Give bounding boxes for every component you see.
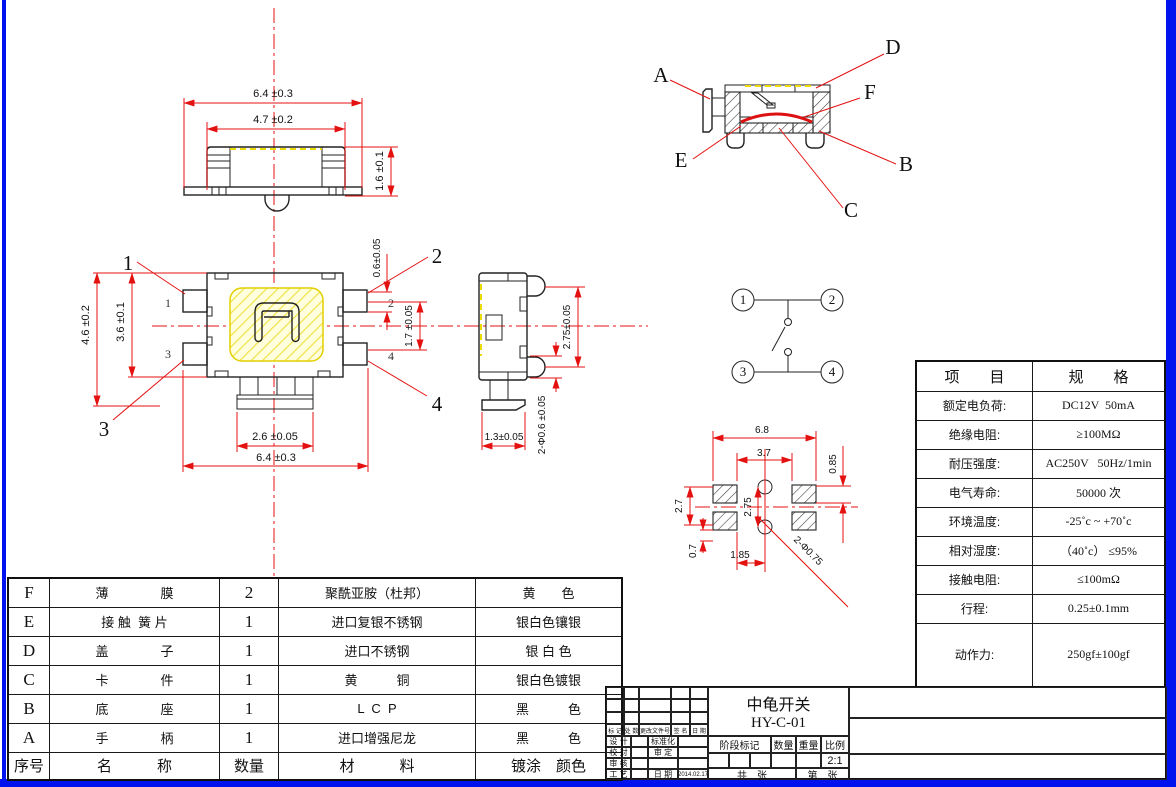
title-cell: 中龟开关 HY-C-01 [708, 687, 849, 736]
label-e: E [675, 148, 688, 172]
drawing-sheet: { "front_view": { "dim_width_outer": "6.… [0, 0, 1176, 787]
bom-name: 卡 件 [50, 665, 220, 694]
weight-label: 重量 [796, 736, 821, 753]
sig-label: 校 对 [606, 747, 631, 758]
bom-footer-qty: 数量 [220, 752, 279, 780]
spec-item: 动作力: [916, 623, 1033, 687]
bom-finish: 黄 色 [476, 578, 623, 607]
label-b: B [899, 152, 913, 176]
contact-spring [741, 114, 812, 122]
bom-qty: 1 [220, 723, 279, 752]
scale-label: 比例 [821, 736, 849, 753]
pin-label-4: 4 [388, 349, 394, 363]
terminal-3: 3 [740, 364, 747, 379]
dim-top-height-outer: 4.6 ±0.2 [80, 305, 92, 345]
dim-bump-dia: 2-Φ0.6 ±0.05 [537, 395, 548, 454]
pad [713, 512, 737, 530]
rev-header: 更改文件号 [639, 724, 671, 736]
pin-label-2: 2 [388, 296, 394, 310]
bom-id: D [8, 636, 50, 665]
spec-table: 项 目 规 格 额定电负荷:DC12V 50mA 绝缘电阻:≥100MΩ 耐压强… [915, 360, 1166, 688]
terminal-1: 1 [740, 292, 747, 307]
sig-label: 审 核 [606, 758, 631, 769]
callout-4: 4 [432, 392, 443, 416]
qty-label: 数量 [771, 736, 796, 753]
bom-name: 底 座 [50, 694, 220, 723]
dim-fp-offset: 1.85 [730, 550, 750, 561]
label-d: D [885, 35, 900, 59]
bom-material: 进口复银不锈钢 [279, 607, 476, 636]
dim-pin-span: 1.7 ±0.05 [404, 305, 415, 347]
bom-id: B [8, 694, 50, 723]
bom-name: 手 柄 [50, 723, 220, 752]
bom-footer-name: 名 称 [50, 752, 220, 780]
bom-name: 接 触 簧 片 [50, 607, 220, 636]
bom-id: F [8, 578, 50, 607]
sig-label [648, 758, 678, 769]
bom-row: B 底 座 1 L C P 黑 色 [8, 694, 622, 723]
dim-front-height: 1.6 ±0.1 [374, 151, 386, 191]
bom-footer-material: 材 料 [279, 752, 476, 780]
bom-material: 进口不锈钢 [279, 636, 476, 665]
bom-material: L C P [279, 694, 476, 723]
spec-item: 额定电负荷: [916, 391, 1033, 420]
pad [792, 485, 816, 503]
bom-material: 聚酰亚胺（杜邦） [279, 578, 476, 607]
film-pad [230, 288, 323, 361]
callout-3: 3 [99, 417, 110, 441]
dim-pin-width: 0.6±0.05 [372, 238, 383, 277]
dim-bump-span: 2.75±0.05 [562, 304, 573, 349]
sig-date: 2014.02.17 [678, 769, 708, 780]
dim-foot-width: 1.3±0.05 [485, 432, 524, 443]
spec-item: 相对湿度: [916, 536, 1033, 565]
bom-name: 薄 膜 [50, 578, 220, 607]
rev-header: 标 记 [606, 724, 624, 736]
spec-item: 绝缘电阻: [916, 420, 1033, 449]
spec-item: 环境温度: [916, 507, 1033, 536]
bom-row: A 手 柄 1 进口增强尼龙 黑 色 [8, 723, 622, 752]
sig-label: 日 期 [648, 769, 678, 780]
title-block: 标 记 处 数 更改文件号 签 名 日 期 设 计 标准化 校 对 审 定 审 … [605, 686, 1166, 779]
dim-fp-hole-pitch: 2.75 [743, 497, 754, 517]
dim-fp-pad-height: 0.85 [828, 454, 839, 474]
rev-header: 日 期 [690, 724, 708, 736]
part-number: HY-C-01 [751, 715, 806, 732]
callout-1: 1 [123, 251, 134, 275]
spec-value: DC12V 50mA [1033, 391, 1166, 420]
bom-qty: 1 [220, 636, 279, 665]
sheet-total: 共 张 [708, 768, 796, 780]
bom-table: F 薄 膜 2 聚酰亚胺（杜邦） 黄 色 E 接 触 簧 片 1 进口复银不锈钢… [7, 577, 623, 781]
spec-value: AC250V 50Hz/1min [1033, 449, 1166, 478]
dim-fp-pad-span: 2.7 [674, 499, 685, 513]
bom-row: E 接 触 簧 片 1 进口复银不锈钢 银白色镶银 [8, 607, 622, 636]
dim-front-width-outer: 6.4 ±0.3 [253, 88, 293, 100]
bom-finish: 银白色镀银 [476, 665, 623, 694]
circuit-diagram: 1 2 3 4 [732, 289, 843, 383]
bom-id: E [8, 607, 50, 636]
front-view: 6.4 ±0.3 4.7 ±0.2 1.6 ±0.1 [184, 88, 398, 211]
bom-qty: 2 [220, 578, 279, 607]
spec-value: ≤100mΩ [1033, 565, 1166, 594]
pin-label-3: 3 [165, 347, 171, 361]
actuator [703, 89, 712, 132]
spec-value: （40˚c） ≤95% [1033, 536, 1166, 565]
bom-row: D 盖 子 1 进口不锈钢 银 白 色 [8, 636, 622, 665]
rev-header: 处 数 [624, 724, 639, 736]
bom-footer-finish: 镀涂 颜色 [476, 752, 623, 780]
pin-label-1: 1 [165, 296, 171, 310]
bom-material: 黄 铜 [279, 665, 476, 694]
sig-label: 设 计 [606, 736, 631, 747]
spec-value: 250gf±100gf [1033, 623, 1166, 687]
bom-id: A [8, 723, 50, 752]
sig-label: 审 定 [648, 747, 678, 758]
bom-finish: 银 白 色 [476, 636, 623, 665]
rev-header: 签 名 [671, 724, 690, 736]
pin-2 [343, 290, 367, 312]
spec-header-spec: 规 格 [1033, 361, 1166, 391]
dim-fp-width-inner: 3.7 [757, 448, 771, 459]
spec-value: 50000 次 [1033, 478, 1166, 507]
dim-front-width-inner: 4.7 ±0.2 [253, 114, 293, 126]
lever [752, 93, 775, 108]
terminal-4: 4 [829, 364, 836, 379]
bom-finish: 黑 色 [476, 694, 623, 723]
dim-fp-edge: 0.7 [688, 544, 699, 558]
pin-4 [343, 343, 367, 365]
dim-fp-width-outer: 6.8 [755, 425, 769, 436]
bom-footer-id: 序号 [8, 752, 50, 780]
label-f: F [864, 80, 876, 104]
bom-qty: 1 [220, 694, 279, 723]
spec-value: -25˚c ~ +70˚c [1033, 507, 1166, 536]
part-title: 中龟开关 [746, 691, 810, 715]
pin-3 [183, 343, 207, 365]
bom-finish: 银白色镶银 [476, 607, 623, 636]
label-c: C [844, 198, 858, 222]
spec-item: 接触电阻: [916, 565, 1033, 594]
spec-value: 0.25±0.1mm [1033, 594, 1166, 623]
bom-row: F 薄 膜 2 聚酰亚胺（杜邦） 黄 色 [8, 578, 622, 607]
bom-qty: 1 [220, 607, 279, 636]
pcb-footprint: 6.8 3.7 0.85 2.7 2.75 0.7 1.85 2-Φ0.75 [674, 425, 858, 607]
label-a: A [653, 63, 669, 87]
spec-item: 行程: [916, 594, 1033, 623]
dim-top-width-outer: 6.4 ±0.3 [256, 452, 296, 464]
bom-footer-row: 序号 名 称 数量 材 料 镀涂 颜色 [8, 752, 622, 780]
bom-id: C [8, 665, 50, 694]
spec-header-item: 项 目 [916, 361, 1033, 391]
dim-fp-hole-dia: 2-Φ0.75 [791, 534, 825, 568]
bom-qty: 1 [220, 665, 279, 694]
bom-finish: 黑 色 [476, 723, 623, 752]
bom-row: C 卡 件 1 黄 铜 银白色镀银 [8, 665, 622, 694]
sheet-number: 第 张 [796, 768, 849, 780]
spec-item: 耐压强度: [916, 449, 1033, 478]
pad [792, 512, 816, 530]
section-view: A D F E B C [653, 35, 913, 222]
stage-label: 阶段标记 [708, 736, 771, 753]
bom-name: 盖 子 [50, 636, 220, 665]
pad [713, 485, 737, 503]
bom-material: 进口增强尼龙 [279, 723, 476, 752]
spec-value: ≥100MΩ [1033, 420, 1166, 449]
side-view: 2.75±0.05 2-Φ0.6 ±0.05 1.3±0.05 [479, 273, 585, 454]
sig-label: 工 艺 [606, 769, 631, 780]
callout-2: 2 [432, 244, 443, 268]
dim-top-height-inner: 3.6 ±0.1 [115, 302, 127, 342]
terminal-2: 2 [829, 292, 836, 307]
sig-label: 标准化 [648, 736, 678, 747]
spec-item: 电气寿命: [916, 478, 1033, 507]
top-view: 1 3 2 4 1 2 3 4 4.6 ±0.2 3.6 ±0.1 0.6±0.… [80, 238, 443, 472]
dim-tab-width: 2.6 ±0.05 [252, 431, 298, 443]
pin-1 [183, 290, 207, 312]
